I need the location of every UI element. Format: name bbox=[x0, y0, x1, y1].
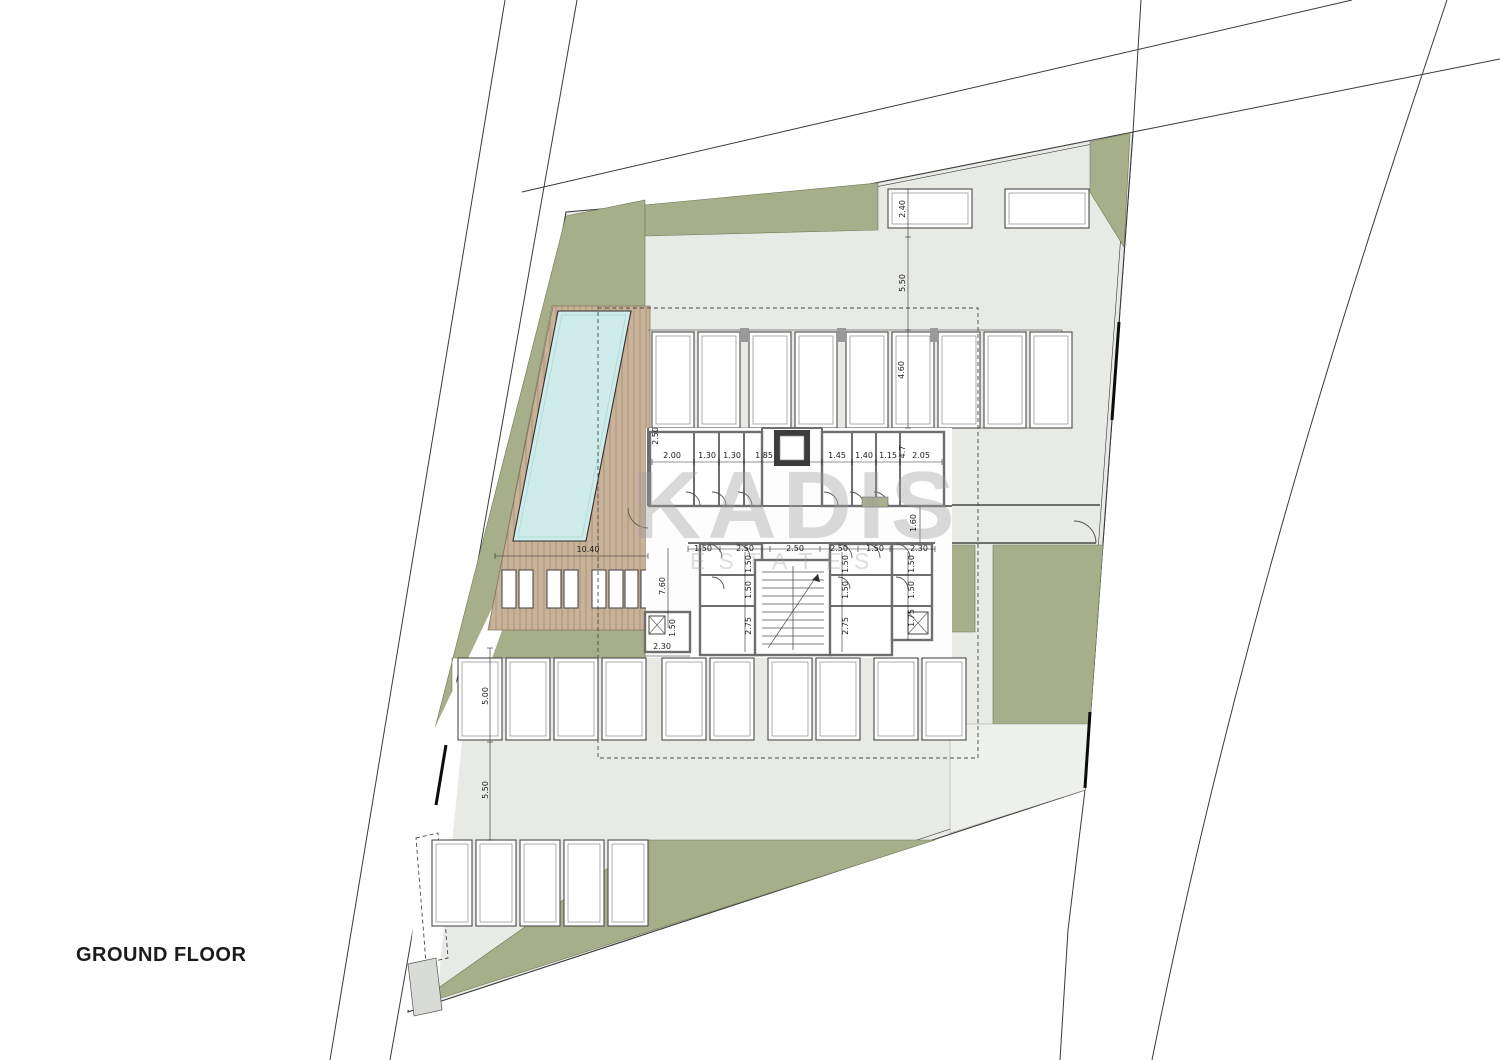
dimension-label: 1.15 bbox=[879, 452, 897, 460]
dimension-label: 2.75 bbox=[842, 617, 850, 635]
dimension-label: 2.40 bbox=[899, 200, 907, 218]
parking-row-south bbox=[432, 840, 648, 926]
dimension-label: 2.50 bbox=[786, 545, 804, 553]
dimension-label: 2.50 bbox=[736, 545, 754, 553]
dimension-label: 5.50 bbox=[482, 781, 490, 799]
dimension-label: 2.75 bbox=[745, 617, 753, 635]
dimension-label: 1.50 bbox=[694, 545, 712, 553]
dimension-label: 5.00 bbox=[482, 687, 490, 705]
dimension-label: 1.50 bbox=[745, 555, 753, 573]
green-mid-large bbox=[993, 545, 1103, 724]
dimension-label: 1.50 bbox=[866, 545, 884, 553]
dimension-label: 1.75 bbox=[908, 609, 916, 627]
site-plan-drawing bbox=[0, 0, 1500, 1060]
dimension-label: 10.40 bbox=[577, 546, 600, 554]
floor-plan-canvas: KADIS ESTATES 2.001.301.301.851.451.401.… bbox=[0, 0, 1500, 1060]
dimension-label: 2.30 bbox=[653, 643, 671, 651]
dimension-label: 2.05 bbox=[912, 452, 930, 460]
dimension-label: 2.00 bbox=[663, 452, 681, 460]
green-top-band bbox=[645, 183, 878, 236]
dimension-label: 1.40 bbox=[855, 452, 873, 460]
dimension-label: 2.50 bbox=[830, 545, 848, 553]
dimension-label: 1.50 bbox=[842, 581, 850, 599]
dimension-label: 1.50 bbox=[669, 619, 677, 637]
dimension-label: 4.7 bbox=[899, 446, 907, 459]
dimension-label: 1.85 bbox=[755, 452, 773, 460]
staircase bbox=[755, 560, 831, 655]
dimension-label: 4.60 bbox=[898, 361, 906, 379]
dimension-label: 1.45 bbox=[828, 452, 846, 460]
dimension-label: 1.30 bbox=[698, 452, 716, 460]
paved-pad-right bbox=[950, 724, 1090, 833]
sun-loungers bbox=[502, 570, 654, 608]
dimension-label: 1.50 bbox=[745, 581, 753, 599]
dimension-label: 1.30 bbox=[723, 452, 741, 460]
dimension-label: 5.50 bbox=[899, 274, 907, 292]
shaft-x-left bbox=[649, 616, 665, 634]
parking-row-north bbox=[648, 328, 1072, 428]
dimension-label: 2.30 bbox=[910, 545, 928, 553]
dimension-label: 1.60 bbox=[910, 514, 918, 532]
dimension-label: 7.60 bbox=[659, 577, 667, 595]
dimension-label: 1.50 bbox=[908, 581, 916, 599]
parking-row-central bbox=[458, 658, 966, 740]
dimension-label: 1.50 bbox=[842, 555, 850, 573]
dimension-label: 2.50 bbox=[652, 427, 660, 445]
floor-title: GROUND FLOOR bbox=[76, 944, 246, 967]
dimension-label: 1.50 bbox=[908, 555, 916, 573]
